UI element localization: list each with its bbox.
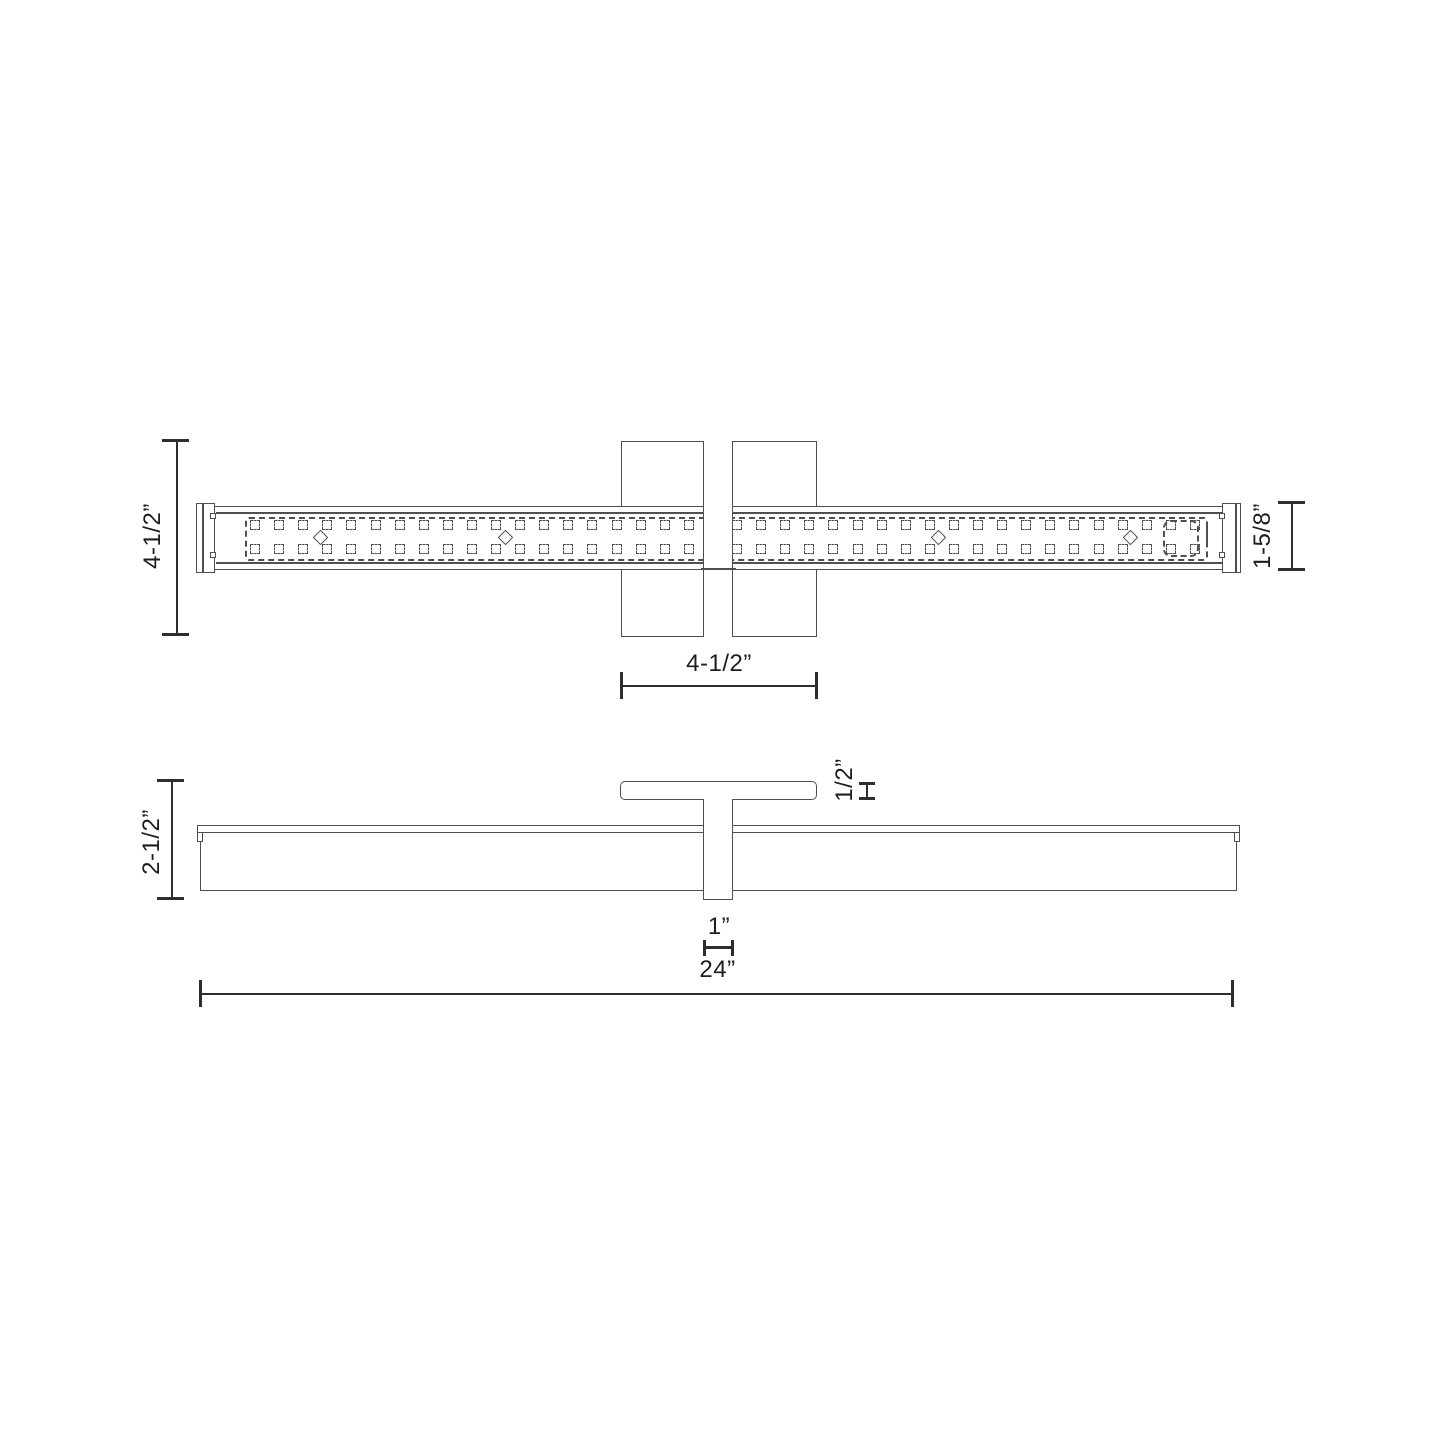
left-endcap-inner-line — [202, 503, 204, 573]
led-pad — [997, 544, 1007, 554]
led-pad — [395, 544, 405, 554]
bar-bottom-line-across-stem — [701, 568, 736, 570]
dim-tick — [703, 940, 706, 956]
canopy-outline — [620, 781, 817, 800]
led-pad — [250, 520, 260, 530]
led-pad — [804, 520, 814, 530]
led-pad — [1045, 544, 1055, 554]
led-pad — [877, 520, 887, 530]
led-pad — [1094, 544, 1104, 554]
dim-tick — [731, 940, 734, 956]
led-pad — [636, 544, 646, 554]
led-pad — [539, 520, 549, 530]
bar-strip-end-notch-right — [1234, 832, 1240, 842]
led-pad — [419, 544, 429, 554]
dim-line-bar-height — [1291, 503, 1293, 570]
led-pad — [515, 544, 525, 554]
dim-label-backplate-width: 4-1/2” — [621, 652, 817, 676]
dim-tick — [162, 633, 189, 636]
led-pad — [925, 520, 935, 530]
led-pad — [491, 520, 501, 530]
connector-pin-line — [1206, 527, 1208, 544]
led-pad — [322, 544, 332, 554]
stem-side-view — [703, 799, 733, 900]
led-pad — [491, 544, 501, 554]
left-endcap-tab-top — [210, 513, 216, 519]
led-pad — [443, 544, 453, 554]
led-pad — [346, 544, 356, 554]
led-pad — [322, 520, 332, 530]
led-pad — [732, 544, 742, 554]
led-pad — [587, 544, 597, 554]
dim-tick — [162, 439, 189, 442]
led-pad — [853, 520, 863, 530]
led-pad — [1045, 520, 1055, 530]
left-endcap-tab-bottom — [210, 552, 216, 558]
led-pad — [949, 544, 959, 554]
led-pad — [804, 544, 814, 554]
led-pad — [684, 544, 694, 554]
led-pad — [467, 544, 477, 554]
led-pad — [1094, 520, 1104, 530]
led-pad — [1142, 544, 1152, 554]
dim-label-depth: 2-1/2” — [140, 809, 164, 875]
right-endcap-tab-top — [1219, 513, 1225, 519]
dim-line-canopy-thickness — [866, 782, 868, 799]
led-pad — [660, 544, 670, 554]
led-pad — [274, 520, 284, 530]
right-endcap-inner-line — [1235, 503, 1237, 573]
stem-top-view — [703, 441, 733, 637]
led-pad — [298, 520, 308, 530]
dim-tick — [1278, 501, 1305, 504]
led-pad — [877, 544, 887, 554]
led-pad — [563, 520, 573, 530]
led-pad — [1021, 544, 1031, 554]
connector-dashed-outline — [1163, 520, 1199, 557]
dim-tick — [199, 980, 202, 1007]
dim-label-stem-width: 1” — [689, 915, 749, 939]
led-pad — [1069, 520, 1079, 530]
led-pad — [828, 544, 838, 554]
led-pad — [443, 520, 453, 530]
led-pad — [515, 520, 525, 530]
led-pad — [419, 520, 429, 530]
led-pad — [612, 544, 622, 554]
led-pad — [901, 520, 911, 530]
dim-label-canopy-thickness: 1/2” — [833, 758, 857, 801]
led-pad — [997, 520, 1007, 530]
led-pad — [949, 520, 959, 530]
led-pad — [587, 520, 597, 530]
dim-label-overall-height: 4-1/2” — [141, 503, 165, 569]
led-pad — [1118, 544, 1128, 554]
led-pad — [780, 520, 790, 530]
dim-label-overall-width: 24” — [201, 958, 1234, 982]
dim-tick — [620, 672, 623, 699]
led-pad — [660, 520, 670, 530]
led-pad — [684, 520, 694, 530]
led-pad — [1118, 520, 1128, 530]
dim-line-overall-height — [176, 441, 178, 635]
bar-strip-end-notch-left — [197, 832, 203, 842]
led-pad — [756, 544, 766, 554]
led-pad — [973, 544, 983, 554]
led-pad — [346, 520, 356, 530]
led-pad — [1021, 520, 1031, 530]
led-pad — [539, 544, 549, 554]
dim-line-depth — [171, 781, 173, 899]
dim-tick — [815, 672, 818, 699]
led-pad — [612, 520, 622, 530]
led-pad — [901, 544, 911, 554]
led-pad — [1069, 544, 1079, 554]
dim-tick — [1278, 568, 1305, 571]
led-pad — [853, 544, 863, 554]
dim-label-bar-height: 1-5/8” — [1251, 503, 1275, 569]
led-pad — [371, 544, 381, 554]
led-pad — [395, 520, 405, 530]
right-endcap-tab-bottom — [1219, 552, 1225, 558]
led-pad — [563, 544, 573, 554]
led-pad — [780, 544, 790, 554]
led-pad — [274, 544, 284, 554]
led-pad — [756, 520, 766, 530]
led-pad — [732, 520, 742, 530]
led-pad — [925, 544, 935, 554]
led-pad — [467, 520, 477, 530]
dim-line-stem-width — [704, 946, 734, 949]
led-pad — [636, 520, 646, 530]
led-pad — [1142, 520, 1152, 530]
led-pad — [828, 520, 838, 530]
dim-tick — [1231, 980, 1234, 1007]
led-pad — [371, 520, 381, 530]
led-pad — [298, 544, 308, 554]
dimension-drawing: 4-1/2” 1-5/8” 4-1/2” 2-1/2” 1/2” — [0, 0, 1445, 1445]
dim-tick — [157, 779, 184, 782]
dim-line-overall-width — [201, 993, 1234, 995]
led-pad — [973, 520, 983, 530]
dim-line-backplate-width — [621, 685, 817, 687]
led-pad — [250, 544, 260, 554]
dim-tick — [157, 897, 184, 900]
